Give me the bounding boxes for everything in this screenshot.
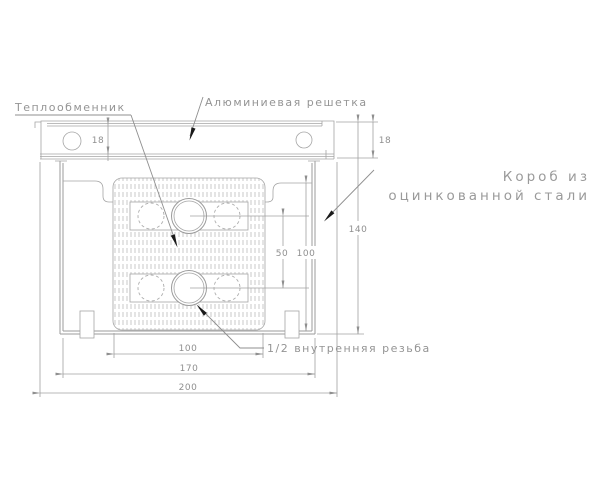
label-steel-box-line2: оцинкованной стали bbox=[388, 188, 590, 204]
grille-right-hook bbox=[322, 121, 334, 159]
box-inner-step-right bbox=[265, 183, 312, 202]
leader-heat-exchanger-arrow bbox=[171, 234, 178, 247]
label-heat-exchanger: Теплообменник bbox=[14, 101, 126, 114]
box-inner-step-left bbox=[63, 181, 113, 202]
label-aluminum-grille: Алюминиевая решетка bbox=[205, 96, 368, 109]
convector-drawing: 18 18 140 100 50 bbox=[0, 0, 600, 480]
grille-hole-right bbox=[296, 132, 312, 148]
box-foot-right bbox=[285, 311, 299, 338]
leader-steel-box-arrow bbox=[324, 210, 334, 221]
dim-exchanger-width: 100 bbox=[114, 333, 263, 358]
aluminum-grille bbox=[35, 121, 334, 159]
label-thread: 1/2 внутренняя резьба bbox=[267, 342, 431, 355]
dim-text-50: 50 bbox=[276, 249, 288, 259]
box-bottom bbox=[60, 331, 315, 334]
box-foot-left bbox=[80, 311, 94, 338]
dim-text-100-vert: 100 bbox=[297, 249, 316, 259]
dim-grille-height-left: 18 bbox=[92, 118, 108, 161]
technical-drawing-page: 18 18 140 100 50 bbox=[0, 0, 600, 480]
leader-thread bbox=[199, 307, 264, 348]
dim-text-200: 200 bbox=[179, 383, 198, 393]
annotations: Теплообменник Алюминиевая решетка Короб … bbox=[14, 96, 590, 355]
dim-text-170: 170 bbox=[180, 364, 199, 374]
grille-bottom-edges bbox=[40, 154, 334, 159]
box-left-wall bbox=[60, 161, 63, 334]
leader-steel-box bbox=[328, 170, 374, 217]
dim-text-18-left: 18 bbox=[92, 136, 104, 146]
dim-grille-height-right: 18 bbox=[336, 122, 391, 158]
grille-hole-left bbox=[63, 132, 81, 150]
label-steel-box-line1: Короб из bbox=[503, 169, 590, 185]
dim-text-140: 140 bbox=[349, 225, 368, 235]
heat-exchanger-block bbox=[113, 176, 265, 332]
grille-left-hook bbox=[35, 121, 47, 159]
dim-text-18-right: 18 bbox=[379, 136, 391, 146]
dim-text-100-bottom: 100 bbox=[179, 344, 198, 354]
dimensions: 18 18 140 100 50 bbox=[40, 118, 391, 397]
grille-top-edges bbox=[47, 121, 322, 126]
leader-thread-arrow bbox=[197, 305, 207, 316]
